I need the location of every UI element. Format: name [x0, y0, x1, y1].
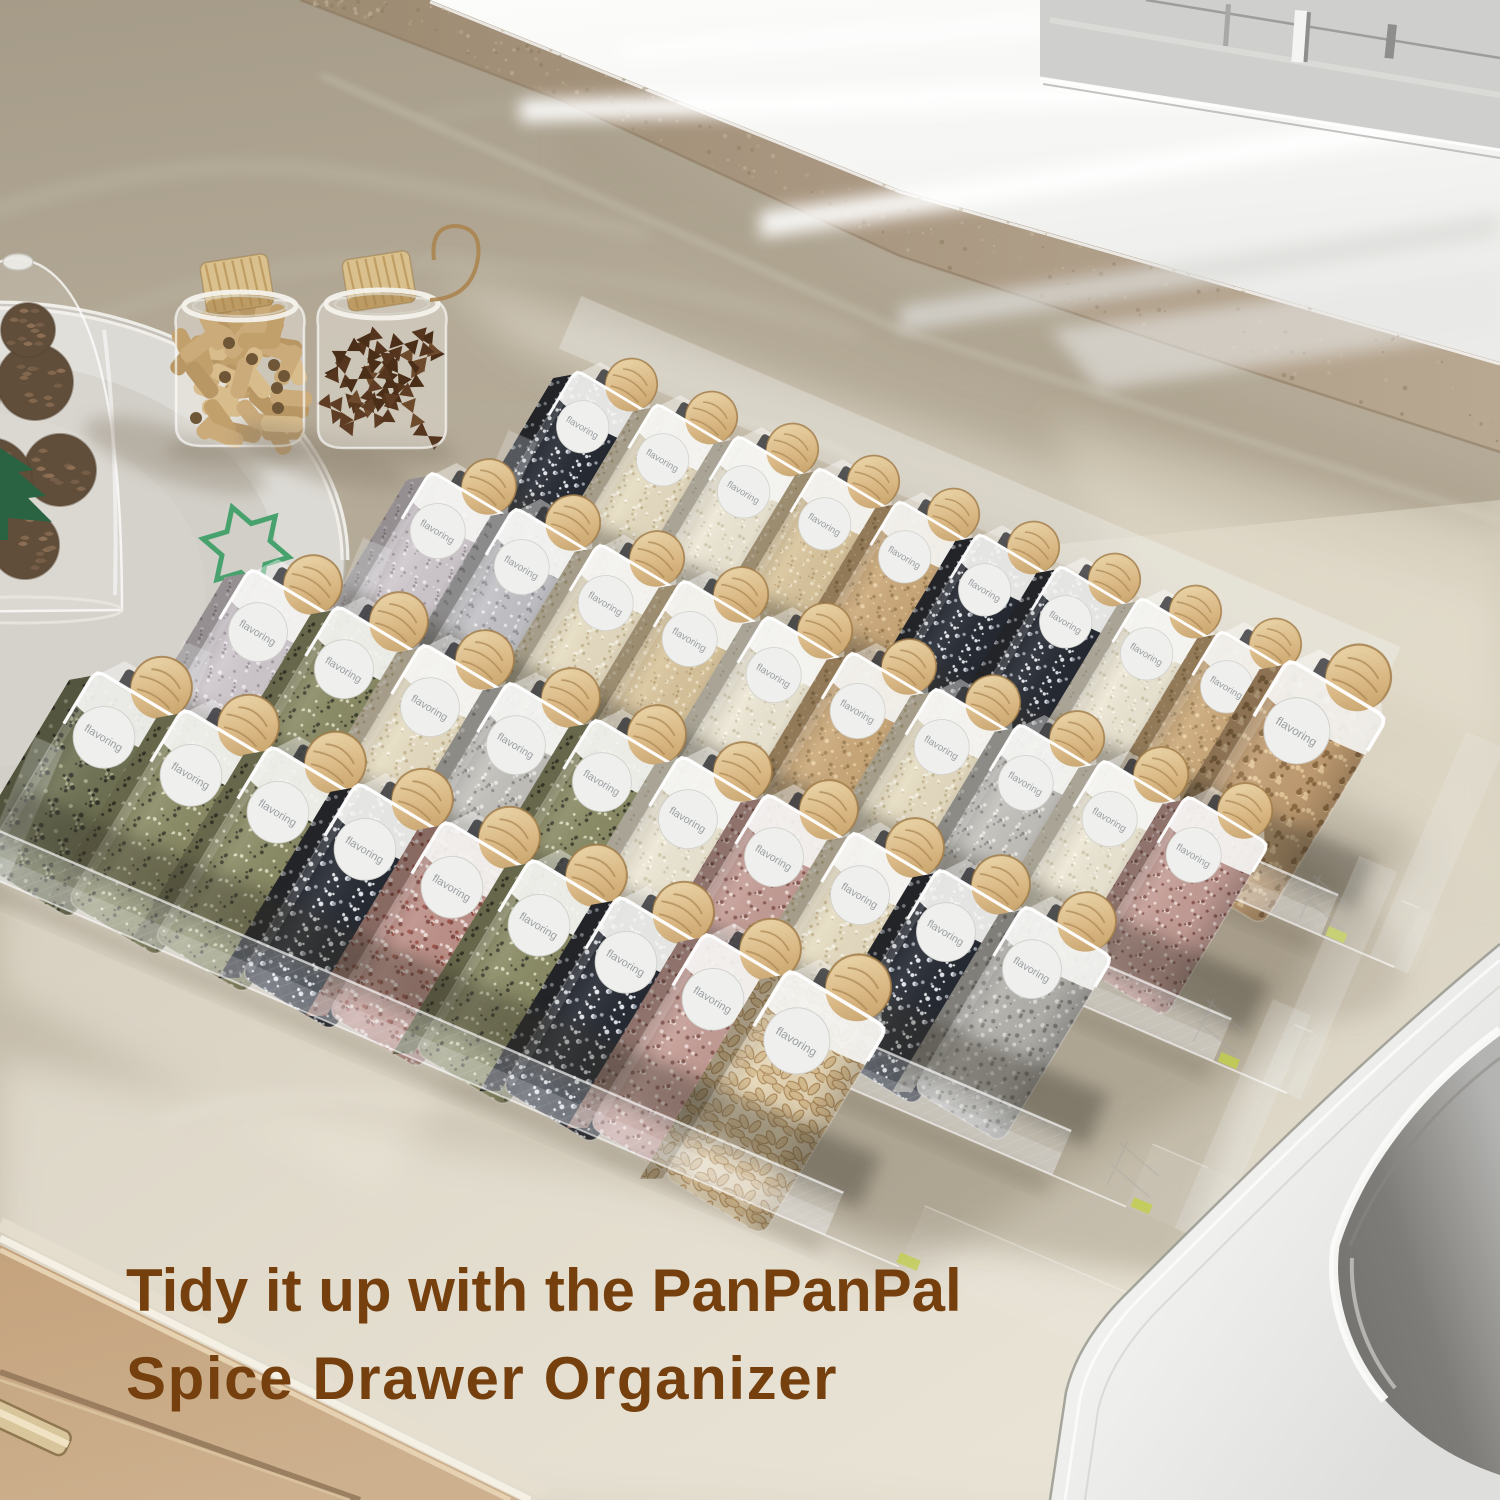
- svg-text:Tidy it up with the PanPanPal: Tidy it up with the PanPanPal: [126, 1257, 962, 1324]
- svg-text:Spice Drawer Organizer: Spice Drawer Organizer: [126, 1345, 838, 1412]
